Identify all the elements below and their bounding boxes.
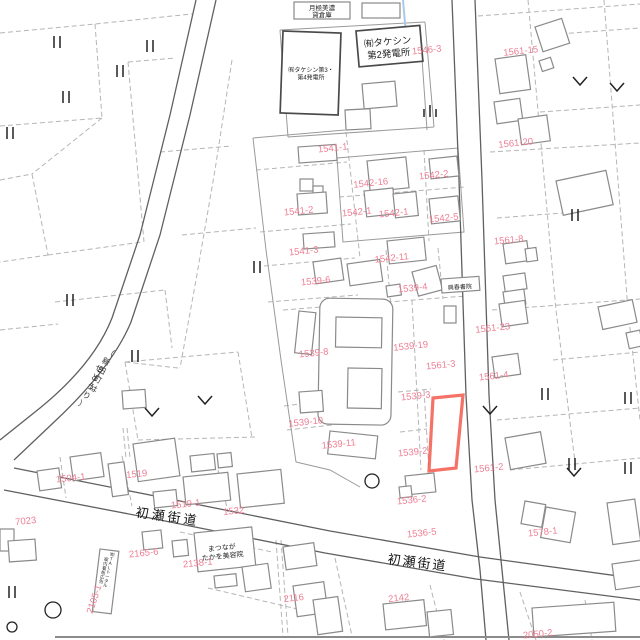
paddy-field-symbol bbox=[132, 350, 138, 362]
building-footprint bbox=[495, 55, 531, 94]
parcel-number-label: 1542-1 bbox=[378, 206, 409, 220]
boundary-dashed-road-side bbox=[125, 60, 256, 440]
paddy-field-symbol bbox=[625, 392, 631, 404]
road-name-label: 初瀬街道 bbox=[387, 551, 448, 573]
parcel-number-label: 1539-3 bbox=[400, 389, 431, 403]
circle-symbol bbox=[45, 602, 61, 618]
parcel-number-label: 1561-4 bbox=[478, 369, 509, 383]
place-name-label: 貸倉庫 bbox=[312, 10, 332, 19]
paddy-field-symbol bbox=[254, 261, 260, 273]
crop-field-symbol bbox=[610, 83, 624, 91]
building-footprint bbox=[335, 317, 382, 348]
crop-field-symbol bbox=[198, 396, 212, 404]
place-name-label: 月極美濃 bbox=[309, 3, 336, 12]
circle-symbol bbox=[7, 622, 17, 632]
building-footprint bbox=[345, 109, 371, 130]
building-footprint bbox=[214, 574, 237, 588]
building-footprint bbox=[362, 81, 397, 109]
parcel-number-label: 1541-1 bbox=[317, 141, 348, 155]
parcel-number-label: 1504-1 bbox=[55, 471, 86, 485]
building-footprint bbox=[237, 469, 284, 507]
building-footprint bbox=[626, 330, 640, 349]
paddy-field-symbol bbox=[117, 65, 123, 77]
building-footprint bbox=[242, 563, 271, 591]
building-footprint bbox=[535, 18, 570, 51]
building-footprint bbox=[539, 57, 554, 71]
paddy-field-symbol bbox=[9, 586, 15, 598]
parcel-number-label: 1539-2 bbox=[397, 445, 428, 459]
building-footprint bbox=[598, 300, 637, 330]
building-footprint bbox=[299, 390, 323, 413]
building-footprint bbox=[283, 543, 317, 570]
parcel-number-label: 1561-23 bbox=[475, 321, 511, 336]
building-footprint bbox=[122, 389, 146, 409]
crop-field-symbol bbox=[573, 77, 587, 85]
building-footprint bbox=[427, 609, 453, 636]
place-name-label: ㈲タケシン第3・ bbox=[288, 66, 333, 74]
parcel-number-label: 1519 bbox=[126, 468, 148, 481]
parcel-number-label: 2142 bbox=[388, 592, 410, 605]
paddy-field-symbol bbox=[625, 462, 631, 474]
building-footprint bbox=[612, 560, 640, 590]
parcel-number-label: 1561-3 bbox=[425, 358, 456, 372]
cadastral-map: 1546-31561-151561-201541-11542-161542-21… bbox=[0, 0, 640, 640]
building-footprint bbox=[313, 597, 343, 635]
building-footprint bbox=[525, 247, 538, 261]
parcel-number-label: 1541-2 bbox=[283, 204, 314, 218]
crop-field-symbol bbox=[145, 408, 159, 416]
building-footprint bbox=[521, 501, 546, 527]
paddy-field-symbol bbox=[542, 388, 548, 400]
parcel-number-label: 1542-1 bbox=[341, 205, 372, 219]
building-footprint bbox=[505, 432, 546, 470]
building-footprint bbox=[362, 3, 400, 18]
parcel-number-label: 1542-5 bbox=[428, 211, 459, 225]
parcel-number-label: 1541-3 bbox=[288, 244, 319, 258]
building-footprint bbox=[108, 462, 128, 497]
parcel-number-label: 1539-10 bbox=[288, 415, 324, 430]
building-footprint bbox=[300, 179, 313, 191]
buildings-layer bbox=[0, 2, 640, 637]
parcel-number-label: 1539-19 bbox=[393, 339, 429, 354]
parcel-number-label: 2165-6 bbox=[128, 546, 159, 560]
building-footprint bbox=[8, 539, 36, 562]
building-footprint bbox=[444, 306, 456, 323]
boundary-dashed-nw bbox=[0, 14, 192, 348]
parcel-number-label: 1536-2 bbox=[396, 493, 427, 507]
parcel-number-label: 1561-20 bbox=[498, 136, 534, 151]
parcel-number-label: 1539-6 bbox=[300, 274, 331, 288]
parcel-number-label: 1542-11 bbox=[374, 251, 409, 266]
road-vertical-east bbox=[452, 0, 509, 640]
parcel-number-label: 2050-2 bbox=[522, 627, 553, 640]
parcel-number-label: 2116 bbox=[283, 592, 304, 605]
parcel-number-label: 1536-5 bbox=[406, 526, 437, 540]
place-name-label: 第4発電所 bbox=[297, 74, 324, 82]
parcel-number-label: 1542-2 bbox=[418, 168, 449, 182]
building-footprint bbox=[190, 453, 216, 471]
highlighted-parcel[interactable] bbox=[429, 395, 463, 471]
paddy-field-symbol bbox=[147, 40, 153, 52]
parcel-number-label: 1532 bbox=[223, 505, 245, 518]
vertical-label-char: ） bbox=[77, 399, 88, 411]
paddy-field-symbol bbox=[54, 36, 60, 48]
building-footprint bbox=[607, 499, 640, 544]
parcel-number-label: 1546-3 bbox=[411, 43, 442, 57]
building-footprint bbox=[556, 170, 613, 215]
circle-symbol bbox=[365, 474, 379, 488]
paddy-field-symbol bbox=[7, 127, 13, 139]
paddy-field-symbol bbox=[63, 91, 69, 103]
road-nitta-hase-dori bbox=[0, 0, 216, 460]
parcel-number-label: 1561-2 bbox=[473, 461, 504, 475]
parcel-number-label: 7023 bbox=[15, 515, 37, 528]
building-footprint bbox=[172, 539, 189, 556]
building-footprint bbox=[217, 453, 232, 468]
building-footprint bbox=[347, 368, 382, 409]
